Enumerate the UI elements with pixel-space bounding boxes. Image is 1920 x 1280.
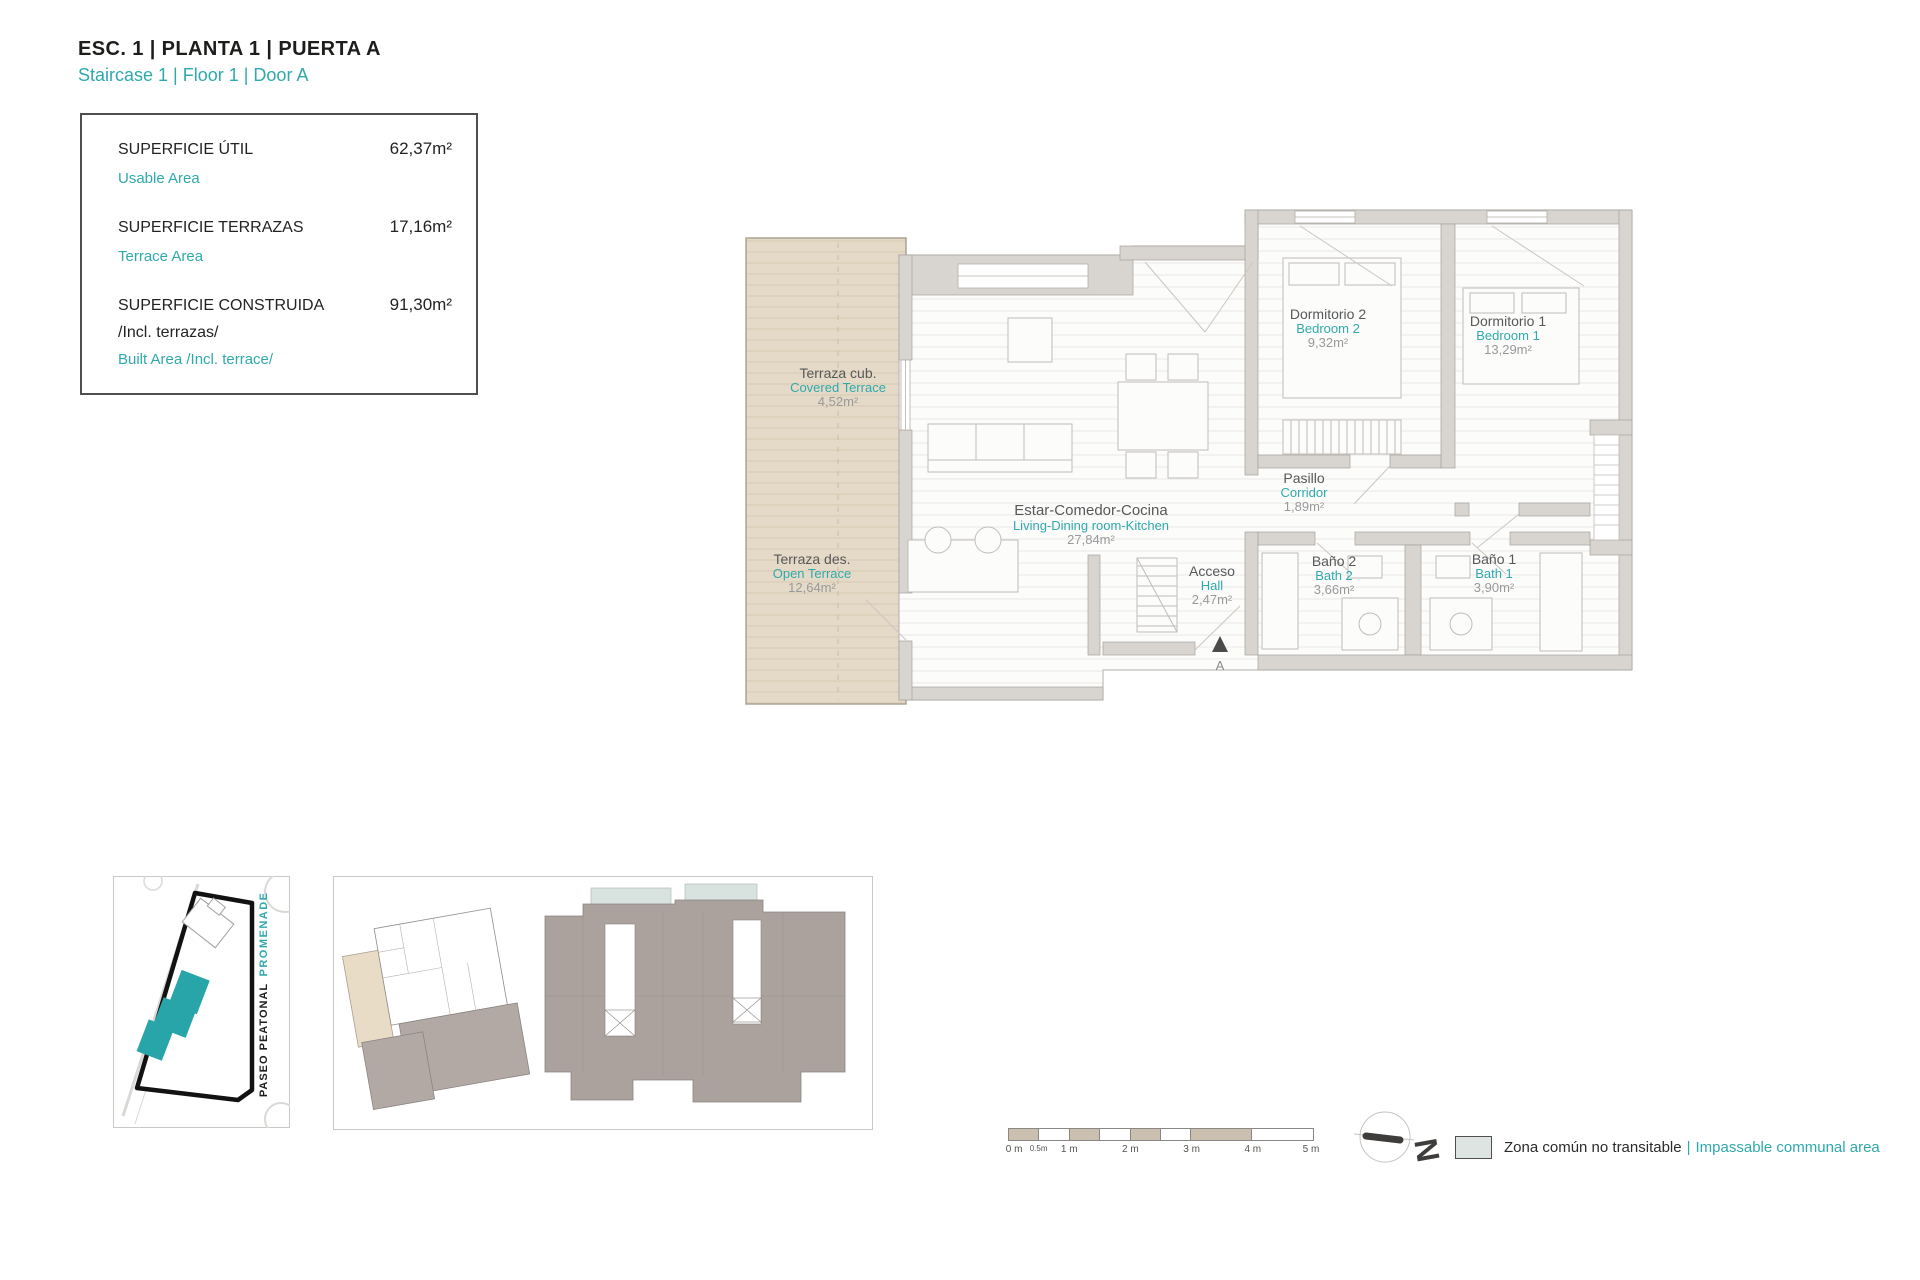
built-area-sublabel: Built Area /Incl. terrace/ xyxy=(118,351,273,368)
room-label-bath1-area: 3,90m² xyxy=(1474,580,1515,595)
room-label-living: Estar-Comedor-Cocina xyxy=(1014,502,1168,519)
north-compass: N xyxy=(1352,1105,1462,1175)
room-label-living-en: Living-Dining room-Kitchen xyxy=(1013,518,1169,533)
usable-area-value: 62,37m² xyxy=(390,139,452,159)
scale-label-5: 5 m xyxy=(1303,1144,1320,1155)
scale-seg xyxy=(1100,1129,1130,1140)
room-label-covered-terrace: Terraza cub. xyxy=(799,365,876,381)
usable-area-label: SUPERFICIE ÚTIL xyxy=(118,141,253,159)
room-label-open-terrace-area: 12,64m² xyxy=(788,580,836,595)
street-label-paseo-peatonal: PASEO PEATONAL xyxy=(258,983,270,1097)
room-label-bath1-en: Bath 1 xyxy=(1475,566,1513,581)
room-label-living-area: 27,84m² xyxy=(1067,532,1115,547)
room-label-bedroom2-en: Bedroom 2 xyxy=(1296,321,1360,336)
overview-right-wing xyxy=(545,884,845,1102)
terrace-area-value: 17,16m² xyxy=(390,217,452,237)
legend-text-en: Impassable communal area xyxy=(1696,1139,1880,1156)
page-subtitle: Staircase 1 | Floor 1 | Door A xyxy=(78,65,381,86)
room-label-corridor-en: Corridor xyxy=(1281,485,1329,500)
scale-seg xyxy=(1039,1129,1069,1140)
room-label-bath2: Baño 2 xyxy=(1312,553,1357,569)
built-area-label: SUPERFICIE CONSTRUIDA xyxy=(118,297,324,315)
room-label-corridor-area: 1,89m² xyxy=(1284,499,1325,514)
built-area-value: 91,30m² xyxy=(390,295,452,315)
entrance-letter: A xyxy=(1216,658,1225,673)
scale-bar-graphic xyxy=(1008,1128,1314,1141)
room-label-bedroom1: Dormitorio 1 xyxy=(1470,313,1546,329)
terrace-area-shape xyxy=(746,238,906,704)
building-overview-plan xyxy=(333,876,873,1130)
scale-seg xyxy=(1252,1129,1313,1140)
scale-seg xyxy=(1131,1129,1161,1140)
scale-label-3: 3 m xyxy=(1183,1144,1200,1155)
scale-seg xyxy=(1070,1129,1100,1140)
site-plan: PROMENADE PASEO PEATONAL xyxy=(113,876,290,1128)
terrace-area-sublabel: Terrace Area xyxy=(118,248,203,265)
room-label-hall: Acceso xyxy=(1189,563,1235,579)
scale-seg xyxy=(1191,1129,1252,1140)
usable-area-sublabel: Usable Area xyxy=(118,170,200,187)
scale-seg xyxy=(1161,1129,1191,1140)
floor-plan: A Terraza cub. Covered Terrace 4,52m² Te… xyxy=(560,170,1680,730)
room-label-bath2-en: Bath 2 xyxy=(1315,568,1353,583)
room-label-covered-terrace-area: 4,52m² xyxy=(818,394,859,409)
room-label-corridor: Pasillo xyxy=(1283,470,1324,486)
room-label-hall-area: 2,47m² xyxy=(1192,592,1233,607)
page-title: ESC. 1 | PLANTA 1 | PUERTA A xyxy=(78,38,381,61)
room-label-covered-terrace-en: Covered Terrace xyxy=(790,380,886,395)
scale-labels: 0 m 0.5m 1 m 2 m 3 m 4 m 5 m xyxy=(1008,1144,1314,1158)
page-header: ESC. 1 | PLANTA 1 | PUERTA A Staircase 1… xyxy=(78,38,381,86)
room-label-hall-en: Hall xyxy=(1201,578,1224,593)
scale-seg xyxy=(1009,1129,1039,1140)
legend-swatch xyxy=(1455,1136,1492,1159)
room-label-bedroom2-area: 9,32m² xyxy=(1308,335,1349,350)
north-arrow xyxy=(1366,1136,1400,1140)
scale-label-4: 4 m xyxy=(1244,1144,1261,1155)
scale-bar: 0 m 0.5m 1 m 2 m 3 m 4 m 5 m xyxy=(1008,1128,1314,1158)
scale-label-0: 0 m xyxy=(1006,1144,1023,1155)
scale-label-2: 2 m xyxy=(1122,1144,1139,1155)
room-label-open-terrace: Terraza des. xyxy=(773,551,850,567)
street-label-promenade: PROMENADE xyxy=(258,891,270,976)
scale-label-05: 0.5m xyxy=(1030,1144,1048,1153)
built-area-label2: /Incl. terrazas/ xyxy=(118,324,218,342)
room-label-bedroom1-en: Bedroom 1 xyxy=(1476,328,1540,343)
legend: Zona común no transitable | Impassable c… xyxy=(1455,1136,1880,1159)
scale-label-1: 1 m xyxy=(1061,1144,1078,1155)
room-label-bath1: Baño 1 xyxy=(1472,551,1517,567)
room-label-bedroom2: Dormitorio 2 xyxy=(1290,306,1366,322)
legend-text-es: Zona común no transitable xyxy=(1504,1139,1682,1156)
room-label-bath2-area: 3,66m² xyxy=(1314,582,1355,597)
legend-separator: | xyxy=(1687,1139,1691,1156)
terrace-area-label: SUPERFICIE TERRAZAS xyxy=(118,219,304,237)
surface-areas-box: SUPERFICIE ÚTIL Usable Area 62,37m² SUPE… xyxy=(80,113,478,395)
closet xyxy=(1594,435,1619,540)
north-letter: N xyxy=(1407,1136,1446,1165)
room-label-bedroom1-area: 13,29m² xyxy=(1484,342,1532,357)
room-label-open-terrace-en: Open Terrace xyxy=(773,566,852,581)
